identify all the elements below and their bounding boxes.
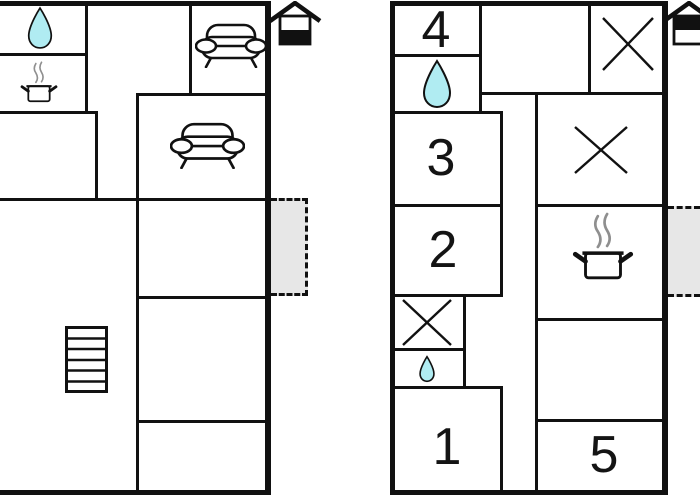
wall bbox=[0, 490, 271, 495]
wall bbox=[136, 93, 268, 96]
room-number-1: 1 bbox=[433, 421, 462, 473]
water-drop-icon bbox=[422, 59, 452, 109]
room-number-2: 2 bbox=[429, 224, 458, 276]
wall bbox=[395, 386, 503, 389]
water-drop-icon bbox=[27, 4, 53, 52]
wall bbox=[0, 198, 270, 201]
floor-plans-canvas: 4 3 2 1 5 bbox=[0, 0, 700, 500]
house-floor-indicator-icon bbox=[662, 1, 700, 47]
wall bbox=[463, 294, 466, 389]
wall bbox=[0, 53, 88, 56]
cooking-pot-icon bbox=[20, 61, 58, 105]
room-number-5: 5 bbox=[590, 429, 619, 481]
wall bbox=[535, 92, 538, 490]
wall bbox=[95, 111, 98, 201]
wall bbox=[535, 204, 662, 207]
sofa-icon bbox=[195, 22, 267, 68]
wall bbox=[136, 420, 266, 423]
cross-icon bbox=[601, 16, 655, 72]
wall bbox=[395, 111, 503, 114]
wall bbox=[395, 294, 503, 297]
wall bbox=[535, 419, 662, 422]
entrance-area bbox=[271, 198, 308, 296]
entrance-area bbox=[668, 206, 700, 297]
room-number-4: 4 bbox=[422, 4, 451, 56]
wall bbox=[395, 204, 503, 207]
wall bbox=[588, 1, 591, 95]
wall bbox=[189, 1, 192, 96]
wall bbox=[136, 93, 139, 490]
room-number-3: 3 bbox=[427, 132, 456, 184]
wall bbox=[390, 1, 395, 495]
wall bbox=[395, 348, 466, 351]
wall bbox=[0, 111, 98, 114]
wall bbox=[535, 318, 662, 321]
wall bbox=[479, 1, 482, 113]
wall bbox=[85, 1, 88, 114]
stairs-icon bbox=[65, 326, 108, 393]
house-floor-indicator-icon bbox=[268, 1, 322, 47]
wall bbox=[390, 490, 668, 495]
water-drop-icon bbox=[419, 355, 435, 383]
wall bbox=[136, 296, 266, 299]
wall bbox=[479, 92, 662, 95]
cross-icon bbox=[401, 298, 453, 347]
cooking-pot-icon bbox=[572, 212, 634, 284]
cross-icon bbox=[573, 125, 629, 175]
wall bbox=[500, 386, 503, 490]
sofa-icon bbox=[170, 121, 245, 169]
